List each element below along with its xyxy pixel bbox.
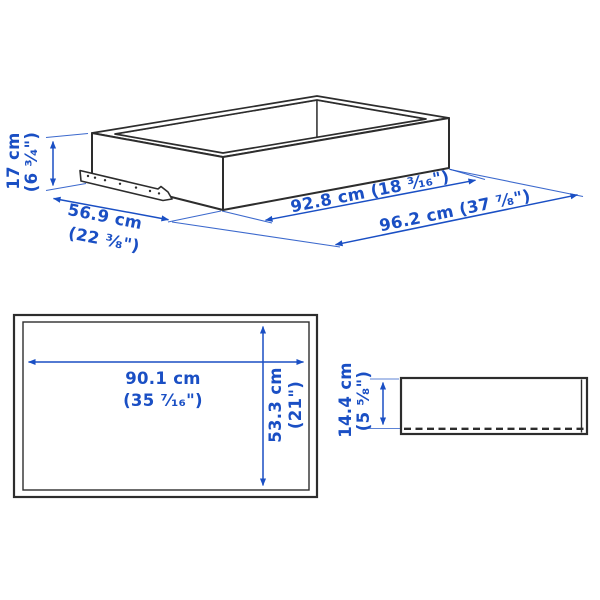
extension-line-depth-right: [168, 211, 221, 222]
screw-hole: [119, 183, 121, 185]
screw-hole: [94, 177, 96, 179]
isometric-view: 17 cm (6 ³⁄₄") 56.9 cm (22 ³⁄₈") 92.8 cm…: [4, 96, 583, 256]
plan-width-label-inches: (35 ⁷⁄₁₆"): [123, 391, 203, 410]
plan-view: 90.1 cm (35 ⁷⁄₁₆") 53.3 cm (21"): [14, 315, 317, 497]
height-label-inches: (6 ³⁄₄"): [22, 132, 41, 193]
dimension-diagram-canvas: 17 cm (6 ³⁄₄") 56.9 cm (22 ³⁄₈") 92.8 cm…: [0, 0, 600, 600]
screw-hole: [135, 186, 137, 188]
front-view: 14.4 cm (5 ⁵⁄₈"): [336, 362, 587, 438]
plan-depth-label-inches: (21"): [286, 381, 305, 429]
screw-hole: [149, 190, 151, 192]
screw-hole: [158, 192, 160, 194]
extension-line-height-top: [46, 134, 88, 138]
plan-depth-label-cm: 53.3 cm: [266, 367, 285, 443]
height-label-cm: 17 cm: [4, 132, 23, 189]
extension-line-inner-width-left: [222, 211, 272, 223]
plan-width-label-cm: 90.1 cm: [125, 369, 201, 388]
extension-line-height-bottom: [46, 184, 86, 191]
screw-hole: [104, 179, 106, 181]
front-panel-outline: [401, 378, 587, 434]
product-dimension-diagram: 17 cm (6 ³⁄₄") 56.9 cm (22 ³⁄₈") 92.8 cm…: [0, 0, 600, 600]
screw-hole: [87, 175, 89, 177]
front-height-label-cm: 14.4 cm: [336, 362, 355, 438]
extension-line-total-width-left: [172, 222, 340, 247]
front-height-label-inches: (5 ⁵⁄₈"): [354, 371, 373, 432]
